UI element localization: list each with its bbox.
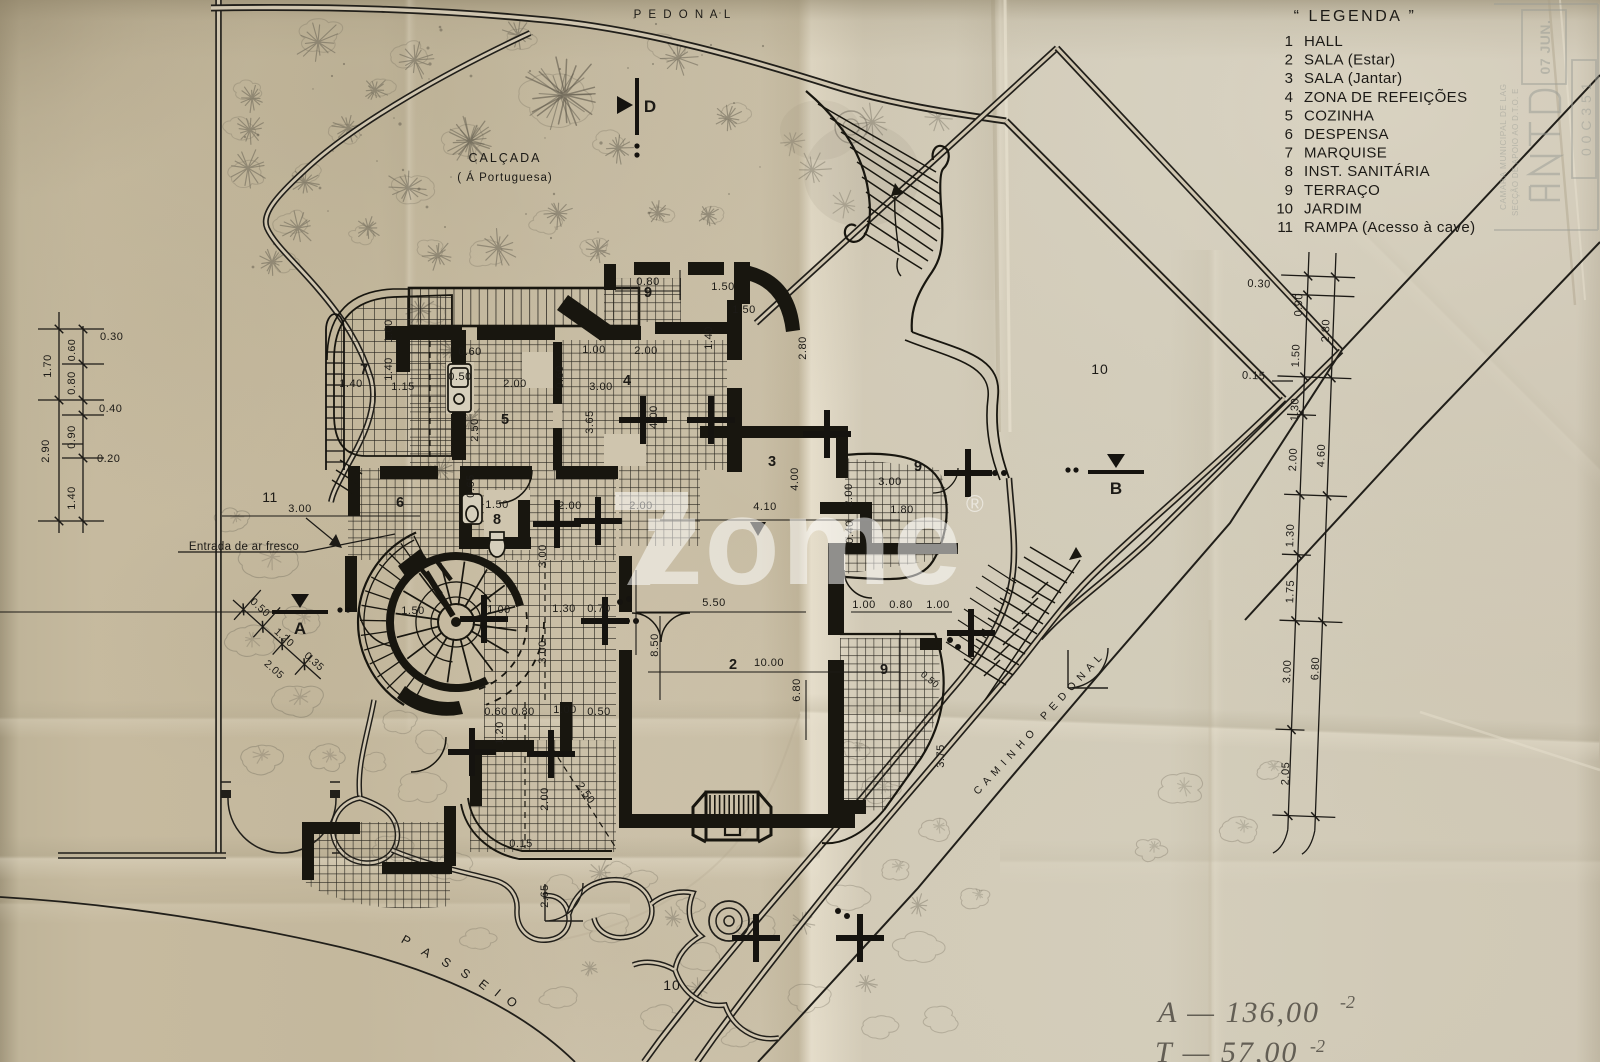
svg-text:1.00: 1.00 — [553, 704, 576, 716]
svg-text:1.40: 1.40 — [383, 357, 395, 380]
svg-text:10: 10 — [1091, 361, 1109, 377]
svg-text:8: 8 — [1285, 163, 1293, 180]
svg-text:3.00: 3.00 — [1281, 660, 1294, 684]
svg-text:P E D O N A L: P E D O N A L — [634, 9, 733, 21]
svg-text:2.00: 2.00 — [503, 378, 526, 390]
svg-text:0.50: 0.50 — [448, 371, 471, 383]
svg-text:MARQUISE: MARQUISE — [1304, 145, 1387, 162]
svg-text:6.80: 6.80 — [791, 678, 803, 701]
svg-text:TERRAÇO: TERRAÇO — [1304, 182, 1380, 199]
svg-text:2.50: 2.50 — [469, 418, 481, 441]
svg-text:3.00: 3.00 — [288, 503, 311, 515]
svg-text:zome: zome — [641, 474, 963, 611]
svg-text:6: 6 — [396, 495, 404, 511]
svg-text:10.00: 10.00 — [754, 657, 784, 669]
svg-text:2.80: 2.80 — [1320, 319, 1333, 343]
svg-text:SALA (Estar): SALA (Estar) — [1304, 52, 1396, 69]
svg-text:1.30: 1.30 — [1284, 524, 1297, 548]
svg-text:11: 11 — [1277, 219, 1293, 236]
svg-text:0.60: 0.60 — [458, 346, 481, 358]
svg-text:0.20: 0.20 — [97, 453, 120, 465]
svg-text:1.00: 1.00 — [487, 604, 510, 616]
svg-text:( Á Portuguesa): ( Á Portuguesa) — [457, 171, 553, 184]
svg-text:1.40: 1.40 — [339, 378, 362, 390]
svg-text:2: 2 — [1285, 52, 1293, 69]
svg-text:1.50: 1.50 — [711, 281, 734, 293]
svg-text:0.30: 0.30 — [100, 331, 123, 343]
svg-text:2.65: 2.65 — [539, 884, 551, 907]
svg-text:1.75: 1.75 — [1284, 580, 1297, 604]
svg-text:1.40: 1.40 — [66, 486, 78, 509]
svg-text:3.00: 3.00 — [537, 544, 549, 567]
svg-text:4: 4 — [1285, 89, 1293, 106]
svg-text:CALÇADA: CALÇADA — [468, 151, 541, 165]
svg-text:7: 7 — [1285, 145, 1293, 162]
svg-text:0.15: 0.15 — [509, 838, 532, 850]
svg-text:2.00: 2.00 — [539, 787, 551, 810]
svg-text:5: 5 — [1285, 107, 1293, 124]
svg-text:4.00: 4.00 — [648, 405, 660, 428]
svg-text:1.30: 1.30 — [1289, 398, 1302, 422]
svg-text:1.50: 1.50 — [1290, 344, 1303, 368]
svg-text:3.00: 3.00 — [589, 381, 612, 393]
svg-text:0.65: 0.65 — [465, 474, 477, 497]
svg-text:1: 1 — [1285, 33, 1293, 50]
svg-text:D: D — [644, 97, 656, 116]
svg-text:-2: -2 — [1340, 992, 1355, 1012]
svg-text:1.40: 1.40 — [703, 326, 715, 349]
svg-text:A — 136,00: A — 136,00 — [1156, 996, 1320, 1029]
svg-text:0.40: 0.40 — [99, 403, 122, 415]
svg-text:B: B — [1110, 479, 1122, 498]
svg-text:2.80: 2.80 — [797, 336, 809, 359]
svg-text:3: 3 — [1285, 70, 1293, 87]
svg-text:A: A — [294, 619, 306, 638]
svg-text:0.80: 0.80 — [511, 706, 534, 718]
svg-text:1.15: 1.15 — [391, 381, 414, 393]
svg-text:0.30: 0.30 — [1247, 278, 1271, 291]
svg-text:0.60: 0.60 — [66, 339, 78, 361]
svg-text:11: 11 — [262, 489, 278, 505]
svg-text:COZINHA: COZINHA — [1304, 107, 1374, 124]
svg-text:0.90: 0.90 — [66, 425, 78, 448]
svg-text:5: 5 — [501, 412, 509, 428]
svg-text:-2: -2 — [1310, 1036, 1325, 1056]
svg-text:“ LEGENDA ”: “ LEGENDA ” — [1294, 8, 1417, 25]
svg-text:2.90: 2.90 — [40, 439, 52, 462]
svg-text:3: 3 — [768, 454, 776, 470]
svg-text:0.60: 0.60 — [484, 706, 507, 718]
svg-text:INST. SANITÁRIA: INST. SANITÁRIA — [1304, 163, 1430, 180]
svg-text:1.70: 1.70 — [42, 354, 54, 377]
svg-text:Entrada de ar fresco: Entrada de ar fresco — [189, 541, 299, 553]
svg-text:2.00: 2.00 — [558, 500, 581, 512]
svg-text:RAMPA (Acesso à cave): RAMPA (Acesso à cave) — [1304, 219, 1476, 236]
svg-text:0.80: 0.80 — [636, 276, 659, 288]
svg-text:3.75: 3.75 — [935, 744, 947, 767]
svg-text:7: 7 — [360, 362, 368, 378]
svg-text:JARDIM: JARDIM — [1304, 200, 1362, 217]
svg-text:2.05: 2.05 — [1279, 762, 1292, 786]
svg-text:4: 4 — [623, 373, 631, 389]
svg-text:1.50: 1.50 — [732, 304, 755, 316]
svg-text:4.60: 4.60 — [1315, 444, 1328, 468]
svg-text:ZONA DE REFEIÇÕES: ZONA DE REFEIÇÕES — [1304, 89, 1468, 106]
svg-text:0 0 C 3 5 1: 0 0 C 3 5 1 — [1578, 82, 1594, 156]
svg-text:8: 8 — [493, 512, 501, 528]
svg-text:2: 2 — [729, 657, 737, 673]
svg-text:10: 10 — [1276, 200, 1293, 217]
svg-text:0.50: 0.50 — [587, 706, 610, 718]
svg-text:9: 9 — [914, 459, 922, 475]
svg-text:1.30: 1.30 — [552, 603, 575, 615]
svg-text:10: 10 — [663, 977, 681, 993]
svg-text:T — 57,00: T — 57,00 — [1155, 1036, 1298, 1062]
svg-text:SALA (Jantar): SALA (Jantar) — [1304, 70, 1403, 87]
svg-text:1.00: 1.00 — [582, 344, 605, 356]
svg-text:SECÇÃO DE APOIO AO D.T.O. E: SECÇÃO DE APOIO AO D.T.O. E — [1511, 88, 1520, 216]
svg-text:8.50: 8.50 — [649, 633, 661, 656]
svg-text:0.70: 0.70 — [587, 603, 610, 615]
svg-text:0.90: 0.90 — [1293, 293, 1306, 317]
svg-text:CAMARA MUNICIPAL DE LAG: CAMARA MUNICIPAL DE LAG — [1499, 83, 1508, 210]
svg-text:6.80: 6.80 — [1309, 657, 1322, 681]
svg-text:0.80: 0.80 — [66, 371, 78, 394]
svg-text:3.00: 3.00 — [537, 640, 549, 663]
svg-text:DESPENSA: DESPENSA — [1304, 126, 1389, 143]
svg-text:HALL: HALL — [1304, 33, 1343, 50]
svg-text:2.00: 2.00 — [1287, 448, 1300, 472]
svg-text:3.65: 3.65 — [584, 410, 596, 433]
svg-text:07 JUN.: 07 JUN. — [1537, 20, 1553, 75]
svg-text:1.00: 1.00 — [383, 319, 395, 342]
svg-text:9: 9 — [880, 662, 888, 678]
svg-text:2.00: 2.00 — [634, 345, 657, 357]
svg-text:0.60: 0.60 — [554, 365, 566, 388]
svg-text:0.15: 0.15 — [1242, 370, 1266, 383]
svg-text:1.50: 1.50 — [485, 499, 508, 511]
svg-text:9: 9 — [1285, 182, 1293, 199]
svg-text:1.50: 1.50 — [401, 605, 424, 617]
svg-text:®: ® — [966, 491, 984, 518]
svg-text:6: 6 — [1285, 126, 1293, 143]
svg-text:1.20: 1.20 — [494, 721, 506, 744]
